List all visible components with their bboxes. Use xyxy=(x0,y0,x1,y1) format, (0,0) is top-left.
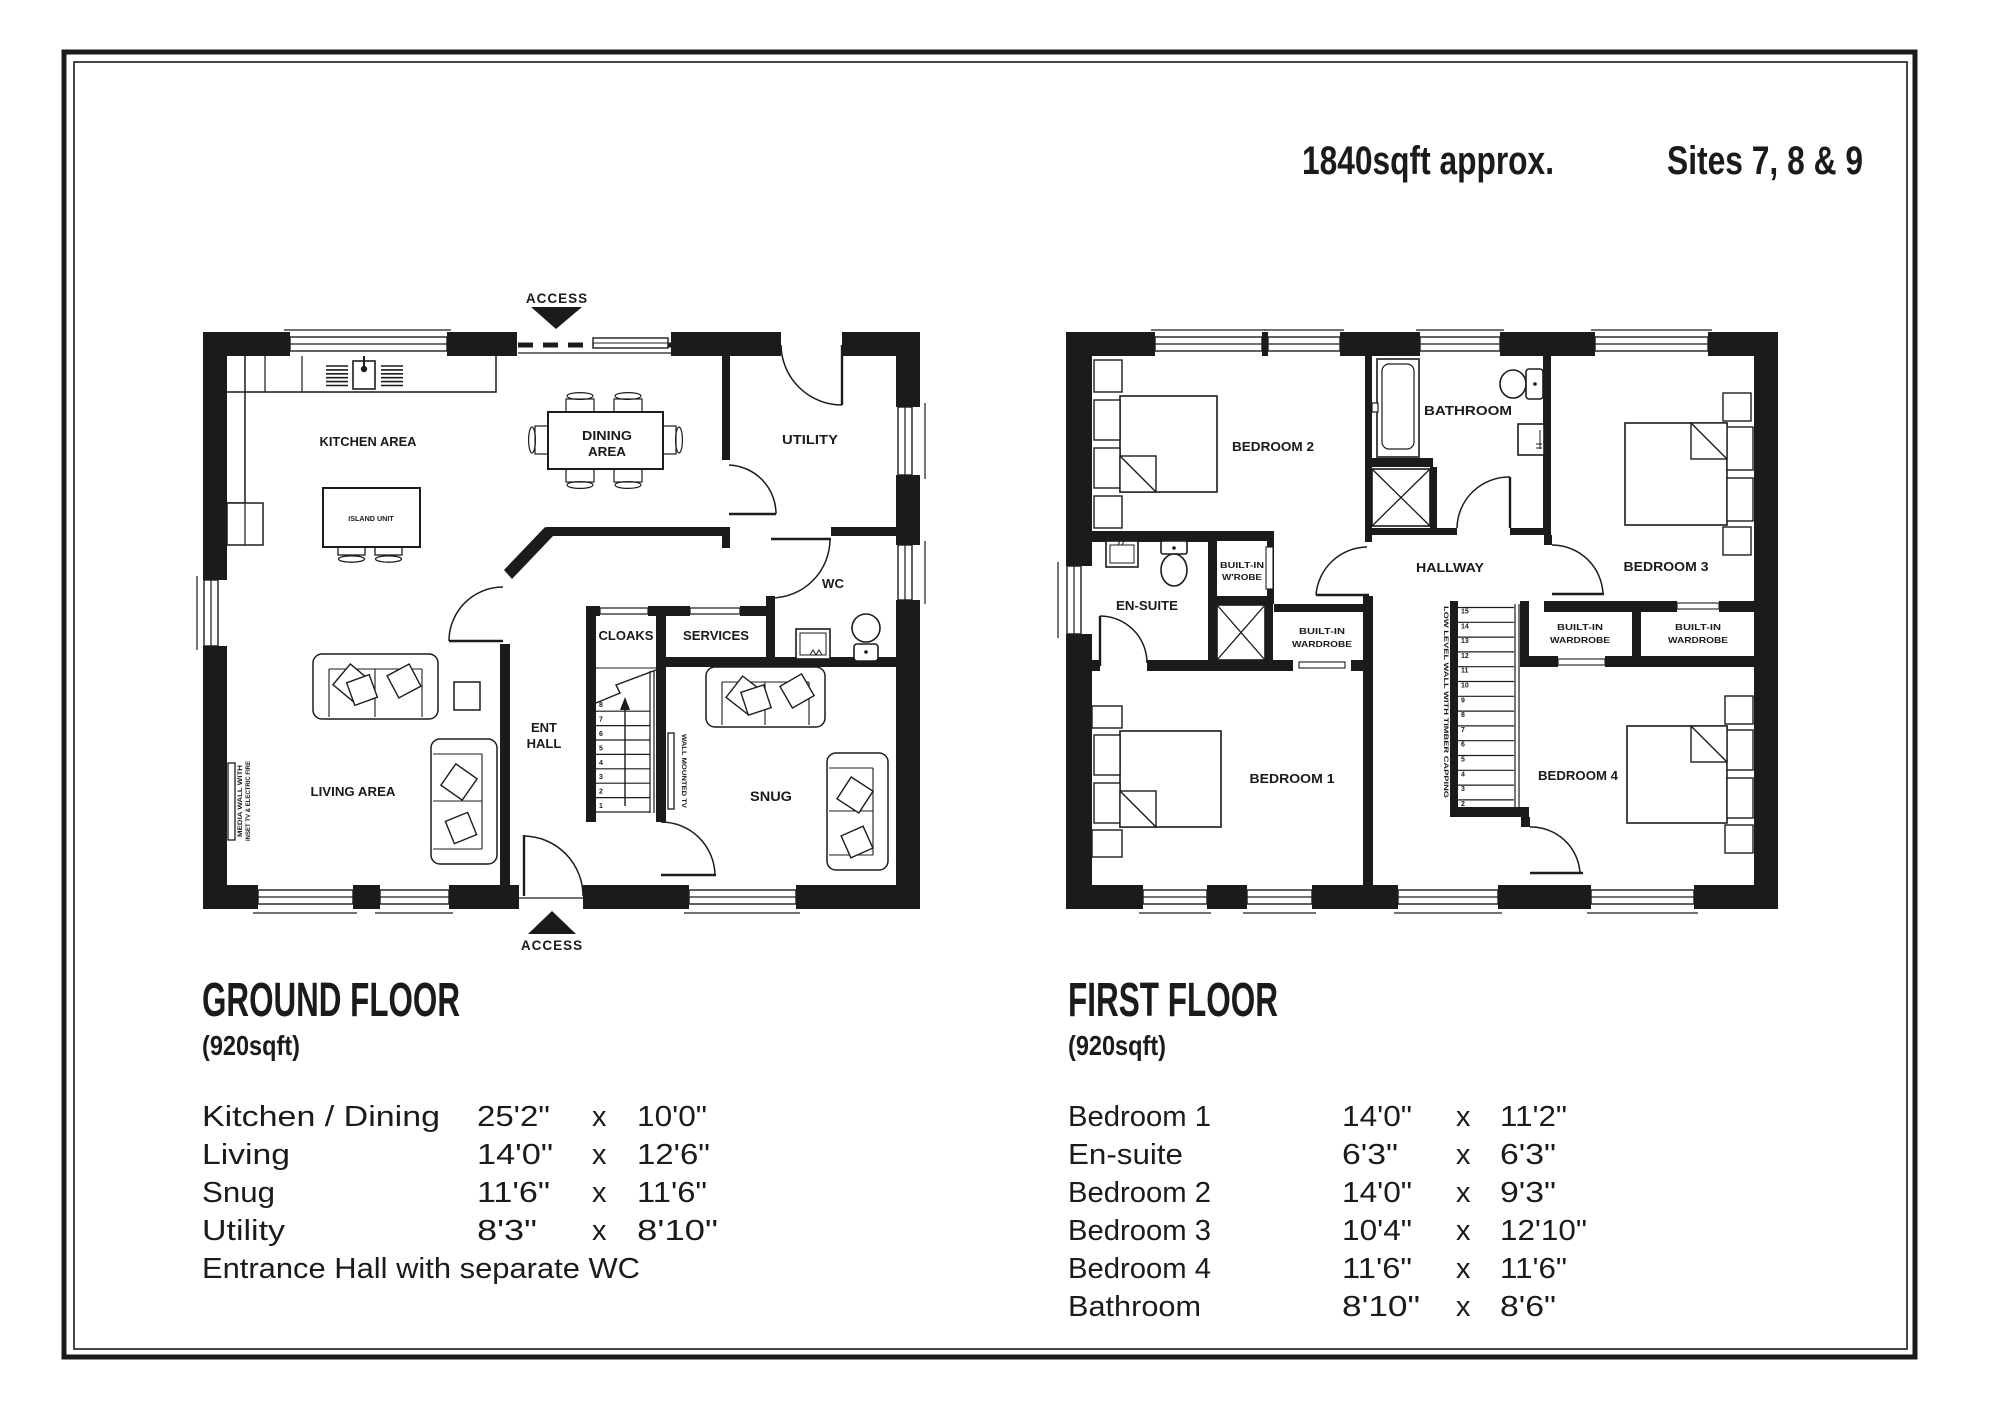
svg-text:4: 4 xyxy=(1461,771,1465,778)
svg-text:x: x xyxy=(1456,1253,1471,1285)
svg-text:KITCHEN AREA: KITCHEN AREA xyxy=(320,434,418,449)
svg-text:LIVING AREA: LIVING AREA xyxy=(311,784,397,799)
svg-text:10'4": 10'4" xyxy=(1342,1215,1412,1247)
svg-text:11'6": 11'6" xyxy=(477,1177,550,1209)
svg-text:W'ROBE: W'ROBE xyxy=(1222,573,1263,582)
svg-text:8'3": 8'3" xyxy=(477,1215,537,1247)
svg-text:11: 11 xyxy=(1461,668,1469,675)
svg-text:Bedroom 2: Bedroom 2 xyxy=(1068,1177,1211,1209)
svg-text:(920sqft): (920sqft) xyxy=(1068,1030,1166,1061)
svg-text:9: 9 xyxy=(1461,697,1465,704)
svg-text:x: x xyxy=(592,1139,607,1171)
svg-text:CLOAKS: CLOAKS xyxy=(599,629,654,643)
svg-text:11'6": 11'6" xyxy=(637,1177,707,1209)
svg-text:AREA: AREA xyxy=(588,444,627,459)
svg-text:12'10": 12'10" xyxy=(1500,1215,1587,1247)
svg-text:14: 14 xyxy=(1461,623,1469,630)
svg-text:Living: Living xyxy=(202,1139,290,1171)
svg-text:INSET TV & ELECTRIC FIRE: INSET TV & ELECTRIC FIRE xyxy=(245,760,252,841)
svg-text:EN-SUITE: EN-SUITE xyxy=(1116,598,1178,613)
svg-text:14'0": 14'0" xyxy=(477,1139,553,1171)
svg-text:FIRST FLOOR: FIRST FLOOR xyxy=(1068,974,1278,1027)
svg-text:Sites 7, 8 & 9: Sites 7, 8 & 9 xyxy=(1667,139,1863,183)
svg-text:4: 4 xyxy=(599,760,603,767)
svg-text:6'3": 6'3" xyxy=(1342,1139,1398,1171)
svg-text:Bedroom 4: Bedroom 4 xyxy=(1068,1253,1211,1285)
svg-text:ACCESS: ACCESS xyxy=(526,291,588,306)
svg-text:ISLAND UNIT: ISLAND UNIT xyxy=(348,514,394,523)
svg-text:3: 3 xyxy=(1461,786,1465,793)
svg-text:2: 2 xyxy=(1461,801,1465,808)
svg-text:LOW LEVEL WALL WITH TIMBER CAP: LOW LEVEL WALL WITH TIMBER CAPPING xyxy=(1442,606,1449,798)
svg-text:11'2": 11'2" xyxy=(1500,1101,1567,1133)
svg-text:Kitchen / Dining: Kitchen / Dining xyxy=(202,1101,440,1133)
svg-text:WARDROBE: WARDROBE xyxy=(1550,635,1610,645)
svg-text:BUILT-IN: BUILT-IN xyxy=(1557,622,1603,632)
svg-text:6'3": 6'3" xyxy=(1500,1139,1556,1171)
svg-text:Bedroom 3: Bedroom 3 xyxy=(1068,1215,1211,1247)
svg-text:BATHROOM: BATHROOM xyxy=(1424,403,1512,418)
svg-text:(920sqft): (920sqft) xyxy=(202,1030,300,1061)
svg-text:x: x xyxy=(1456,1101,1471,1133)
svg-text:SERVICES: SERVICES xyxy=(683,629,749,643)
svg-text:1840sqft approx.: 1840sqft approx. xyxy=(1302,139,1554,183)
svg-text:10'0": 10'0" xyxy=(637,1101,707,1133)
svg-text:11'6": 11'6" xyxy=(1342,1253,1412,1285)
svg-text:En-suite: En-suite xyxy=(1068,1139,1183,1171)
svg-text:1: 1 xyxy=(599,803,603,810)
svg-text:3: 3 xyxy=(599,774,603,781)
svg-text:6: 6 xyxy=(1461,742,1465,749)
svg-text:14'0": 14'0" xyxy=(1342,1177,1412,1209)
svg-text:14'0": 14'0" xyxy=(1342,1101,1412,1133)
svg-text:Entrance Hall with separate WC: Entrance Hall with separate WC xyxy=(202,1253,640,1285)
svg-text:8'6": 8'6" xyxy=(1500,1291,1556,1323)
svg-text:SNUG: SNUG xyxy=(750,789,792,804)
svg-text:Bedroom 1: Bedroom 1 xyxy=(1068,1101,1211,1133)
svg-text:BEDROOM 1: BEDROOM 1 xyxy=(1250,771,1335,786)
svg-text:7: 7 xyxy=(599,717,603,724)
svg-text:8'10": 8'10" xyxy=(637,1215,718,1247)
svg-text:8: 8 xyxy=(599,702,603,709)
svg-text:5: 5 xyxy=(1461,757,1465,764)
svg-text:HALL: HALL xyxy=(527,736,562,751)
svg-text:6: 6 xyxy=(599,731,603,738)
svg-text:x: x xyxy=(1456,1177,1471,1209)
svg-text:x: x xyxy=(1456,1291,1471,1323)
svg-text:10: 10 xyxy=(1461,683,1469,690)
svg-text:x: x xyxy=(1456,1139,1471,1171)
svg-text:12: 12 xyxy=(1461,653,1469,660)
svg-text:12'6": 12'6" xyxy=(637,1139,710,1171)
svg-text:2: 2 xyxy=(599,789,603,796)
svg-text:BEDROOM 2: BEDROOM 2 xyxy=(1232,439,1314,454)
svg-text:x: x xyxy=(592,1215,607,1247)
svg-text:x: x xyxy=(1456,1215,1471,1247)
svg-text:BEDROOM 4: BEDROOM 4 xyxy=(1538,768,1619,783)
svg-text:5: 5 xyxy=(599,745,603,752)
svg-text:HALLWAY: HALLWAY xyxy=(1416,560,1484,575)
svg-text:Bathroom: Bathroom xyxy=(1068,1291,1201,1323)
svg-text:BEDROOM 3: BEDROOM 3 xyxy=(1624,559,1709,574)
svg-text:WARDROBE: WARDROBE xyxy=(1292,639,1352,649)
svg-text:11'6": 11'6" xyxy=(1500,1253,1567,1285)
svg-text:8: 8 xyxy=(1461,712,1465,719)
svg-text:Snug: Snug xyxy=(202,1177,275,1209)
svg-text:GROUND FLOOR: GROUND FLOOR xyxy=(202,974,460,1027)
svg-text:9'3": 9'3" xyxy=(1500,1177,1556,1209)
svg-text:MEDIA WALL WITH: MEDIA WALL WITH xyxy=(237,765,244,837)
svg-text:WARDROBE: WARDROBE xyxy=(1668,635,1728,645)
svg-text:Utility: Utility xyxy=(202,1215,286,1247)
svg-text:BUILT-IN: BUILT-IN xyxy=(1220,561,1264,570)
svg-text:7: 7 xyxy=(1461,727,1465,734)
svg-text:13: 13 xyxy=(1461,638,1469,645)
svg-text:ENT: ENT xyxy=(531,720,557,735)
svg-text:WALL MOUNTED TV: WALL MOUNTED TV xyxy=(680,734,687,809)
svg-text:BUILT-IN: BUILT-IN xyxy=(1299,626,1345,636)
svg-text:UTILITY: UTILITY xyxy=(782,432,838,447)
svg-text:15: 15 xyxy=(1461,609,1469,616)
svg-text:WC: WC xyxy=(822,577,844,591)
svg-text:DINING: DINING xyxy=(582,428,632,443)
svg-text:ACCESS: ACCESS xyxy=(521,938,583,953)
svg-text:BUILT-IN: BUILT-IN xyxy=(1675,622,1721,632)
svg-text:25'2": 25'2" xyxy=(477,1101,550,1133)
svg-text:x: x xyxy=(592,1101,607,1133)
svg-text:x: x xyxy=(592,1177,607,1209)
svg-text:8'10": 8'10" xyxy=(1342,1291,1420,1323)
